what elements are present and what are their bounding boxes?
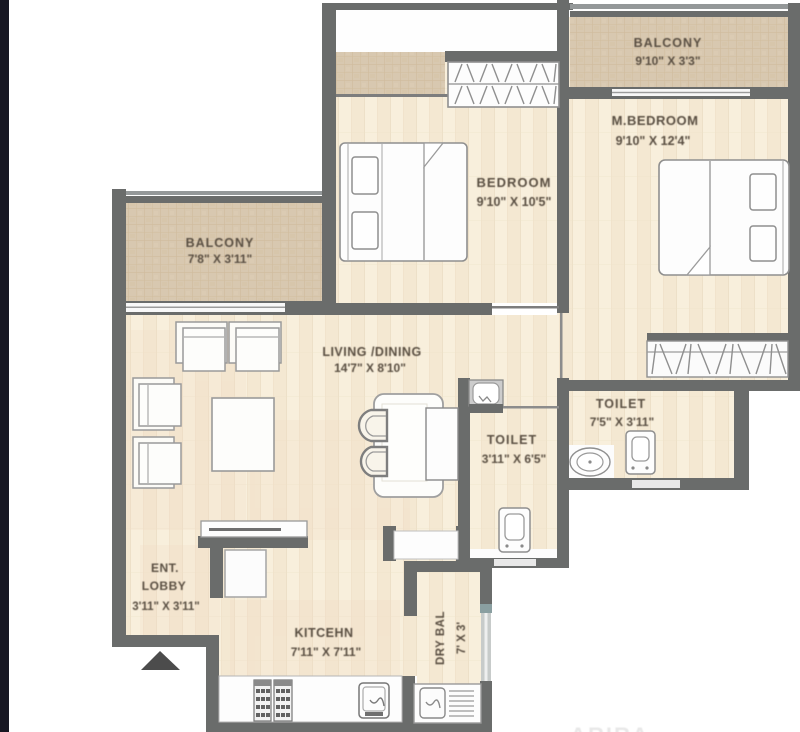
svg-text:DRY BAL: DRY BAL bbox=[435, 611, 447, 665]
svg-text:3'11" X 6'5": 3'11" X 6'5" bbox=[482, 452, 546, 466]
svg-text:7'11" X 7'11": 7'11" X 7'11" bbox=[291, 645, 361, 659]
svg-text:14'7" X 8'10": 14'7" X 8'10" bbox=[334, 361, 406, 375]
svg-text:7'5" X 3'11": 7'5" X 3'11" bbox=[590, 415, 654, 429]
svg-text:ARIRA: ARIRA bbox=[570, 723, 650, 732]
svg-text:M.BEDROOM: M.BEDROOM bbox=[612, 113, 699, 128]
svg-text:7'8" X 3'11": 7'8" X 3'11" bbox=[188, 252, 252, 266]
svg-text:KITCEHN: KITCEHN bbox=[294, 626, 353, 640]
svg-text:ENT.: ENT. bbox=[151, 561, 179, 575]
svg-text:BALCONY: BALCONY bbox=[634, 36, 703, 50]
svg-text:BALCONY: BALCONY bbox=[186, 236, 255, 250]
svg-text:LOBBY: LOBBY bbox=[142, 579, 187, 593]
svg-text:LIVING /DINING: LIVING /DINING bbox=[322, 345, 421, 359]
svg-text:BEDROOM: BEDROOM bbox=[477, 175, 552, 190]
svg-text:9'10" X 10'5": 9'10" X 10'5" bbox=[477, 195, 552, 209]
svg-text:9'10" X 3'3": 9'10" X 3'3" bbox=[635, 54, 700, 68]
svg-text:TOILET: TOILET bbox=[596, 397, 646, 411]
svg-text:3'11" X 3'11": 3'11" X 3'11" bbox=[132, 601, 200, 613]
svg-text:TOILET: TOILET bbox=[487, 433, 537, 447]
svg-text:7' X 3': 7' X 3' bbox=[456, 622, 468, 655]
svg-text:9'10" X 12'4": 9'10" X 12'4" bbox=[616, 134, 691, 148]
